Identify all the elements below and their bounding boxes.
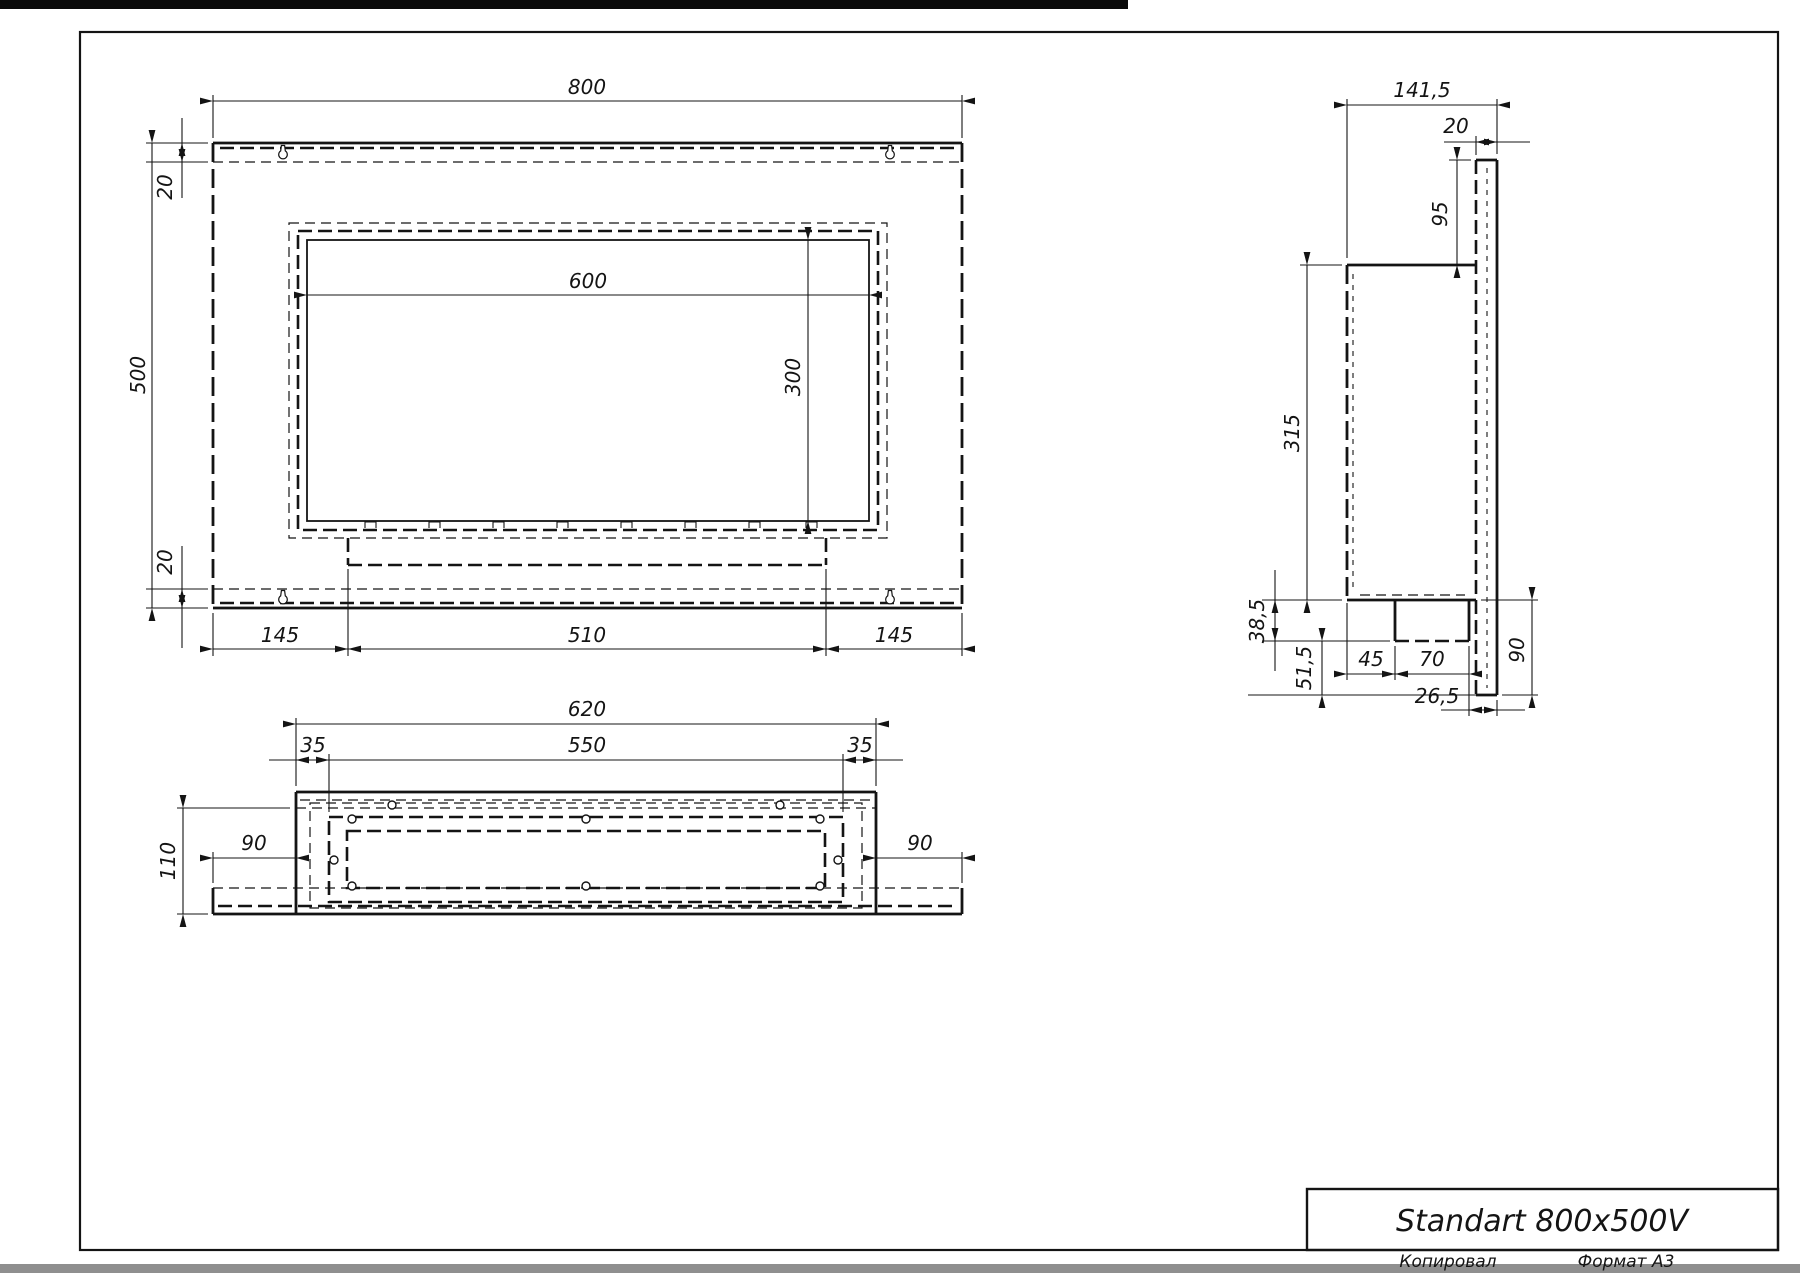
drawing-sheet: 800 500 20 20 600 300 xyxy=(0,0,1800,1273)
fixing-tabs xyxy=(365,522,817,528)
keyhole-mount-icon xyxy=(279,591,288,604)
bottom-view-dimensions: 620 35 550 35 110 90 90 xyxy=(156,697,962,914)
screw-hole xyxy=(348,882,356,890)
screw-hole xyxy=(330,856,338,864)
format-label: Формат А3 xyxy=(1578,1252,1675,1272)
dim-inset-left: 35 xyxy=(300,733,325,757)
dim-inset-right: 35 xyxy=(847,733,872,757)
dim-body-height: 315 xyxy=(1280,414,1304,452)
burner-tray-hidden xyxy=(348,538,826,565)
dim-body-width: 620 xyxy=(568,697,606,721)
screw-hole xyxy=(582,882,590,890)
drawing-title: Standart 800x500V xyxy=(1396,1204,1691,1239)
screw-hole xyxy=(348,815,356,823)
dim-top-offset: 95 xyxy=(1428,201,1452,226)
dim-bottom-offset: 51,5 xyxy=(1292,646,1316,691)
dim-margin-left: 145 xyxy=(261,623,299,647)
copier-label: Копировал xyxy=(1399,1252,1496,1272)
dim-side-left: 90 xyxy=(241,831,266,855)
bottom-view-outline xyxy=(213,792,962,914)
keyhole-mount-icon xyxy=(886,591,895,604)
dim-tray-front-gap: 45 xyxy=(1358,647,1383,671)
screw-hole xyxy=(816,882,824,890)
side-view-dimensions: 141,5 20 95 315 38,5 51,5 xyxy=(1245,78,1538,716)
dim-opening-width: 600 xyxy=(569,269,607,293)
dim-front-flange-bottom: 20 xyxy=(153,549,177,574)
dim-opening-height: 300 xyxy=(781,358,805,396)
screw-hole xyxy=(776,801,784,809)
dim-front-width: 800 xyxy=(568,75,606,99)
title-block: Standart 800x500V Копировал Формат А3 xyxy=(1307,1189,1778,1272)
dim-tray-length: 70 xyxy=(1419,647,1444,671)
dim-side-right: 90 xyxy=(907,831,932,855)
dim-front-flange-top: 20 xyxy=(153,174,177,199)
screw-holes xyxy=(330,801,842,890)
dim-side-depth: 141,5 xyxy=(1393,78,1450,102)
dim-plate-thickness: 20 xyxy=(1443,114,1468,138)
dim-back-gap: 26,5 xyxy=(1415,684,1460,708)
technical-drawing: 800 500 20 20 600 300 xyxy=(0,0,1800,1273)
dim-burner-width: 510 xyxy=(568,623,606,647)
screw-hole xyxy=(388,801,396,809)
dim-front-height: 500 xyxy=(126,356,150,394)
scan-edge-top xyxy=(0,0,1128,9)
front-view: 800 500 20 20 600 300 xyxy=(126,75,962,656)
dim-margin-right: 145 xyxy=(875,623,913,647)
side-view: 141,5 20 95 315 38,5 51,5 xyxy=(1245,78,1538,716)
dim-tray-depth: 38,5 xyxy=(1245,599,1269,644)
bottom-view: 620 35 550 35 110 90 90 xyxy=(156,697,962,914)
screw-hole xyxy=(834,856,842,864)
scan-edge-bottom xyxy=(0,1264,1800,1273)
dim-lower-height: 90 xyxy=(1505,637,1529,662)
dim-bottom-opening-width: 550 xyxy=(568,733,606,757)
screw-hole xyxy=(582,815,590,823)
screw-hole xyxy=(816,815,824,823)
dim-bottom-depth: 110 xyxy=(156,842,180,880)
